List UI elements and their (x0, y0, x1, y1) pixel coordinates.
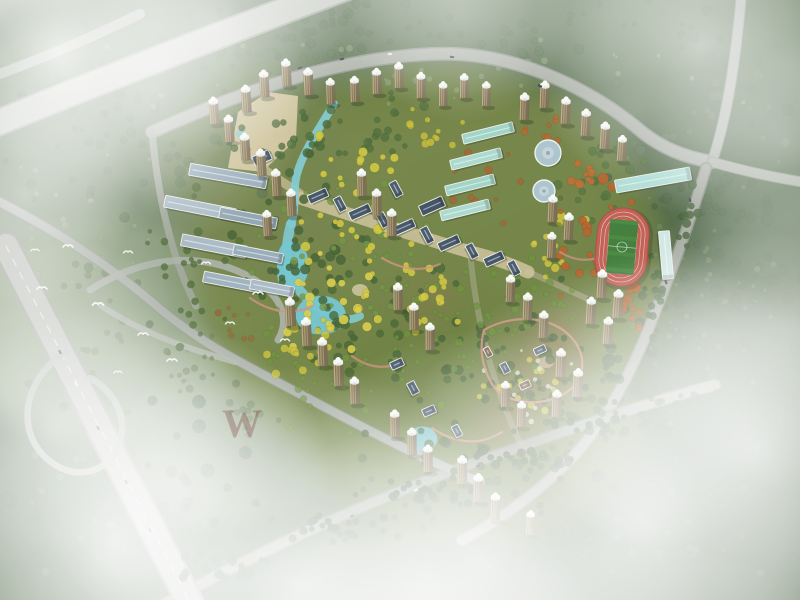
aerial-site-plan-rendering: W (0, 0, 800, 600)
render-canvas (0, 0, 800, 600)
atmosphere-veil (0, 0, 800, 600)
